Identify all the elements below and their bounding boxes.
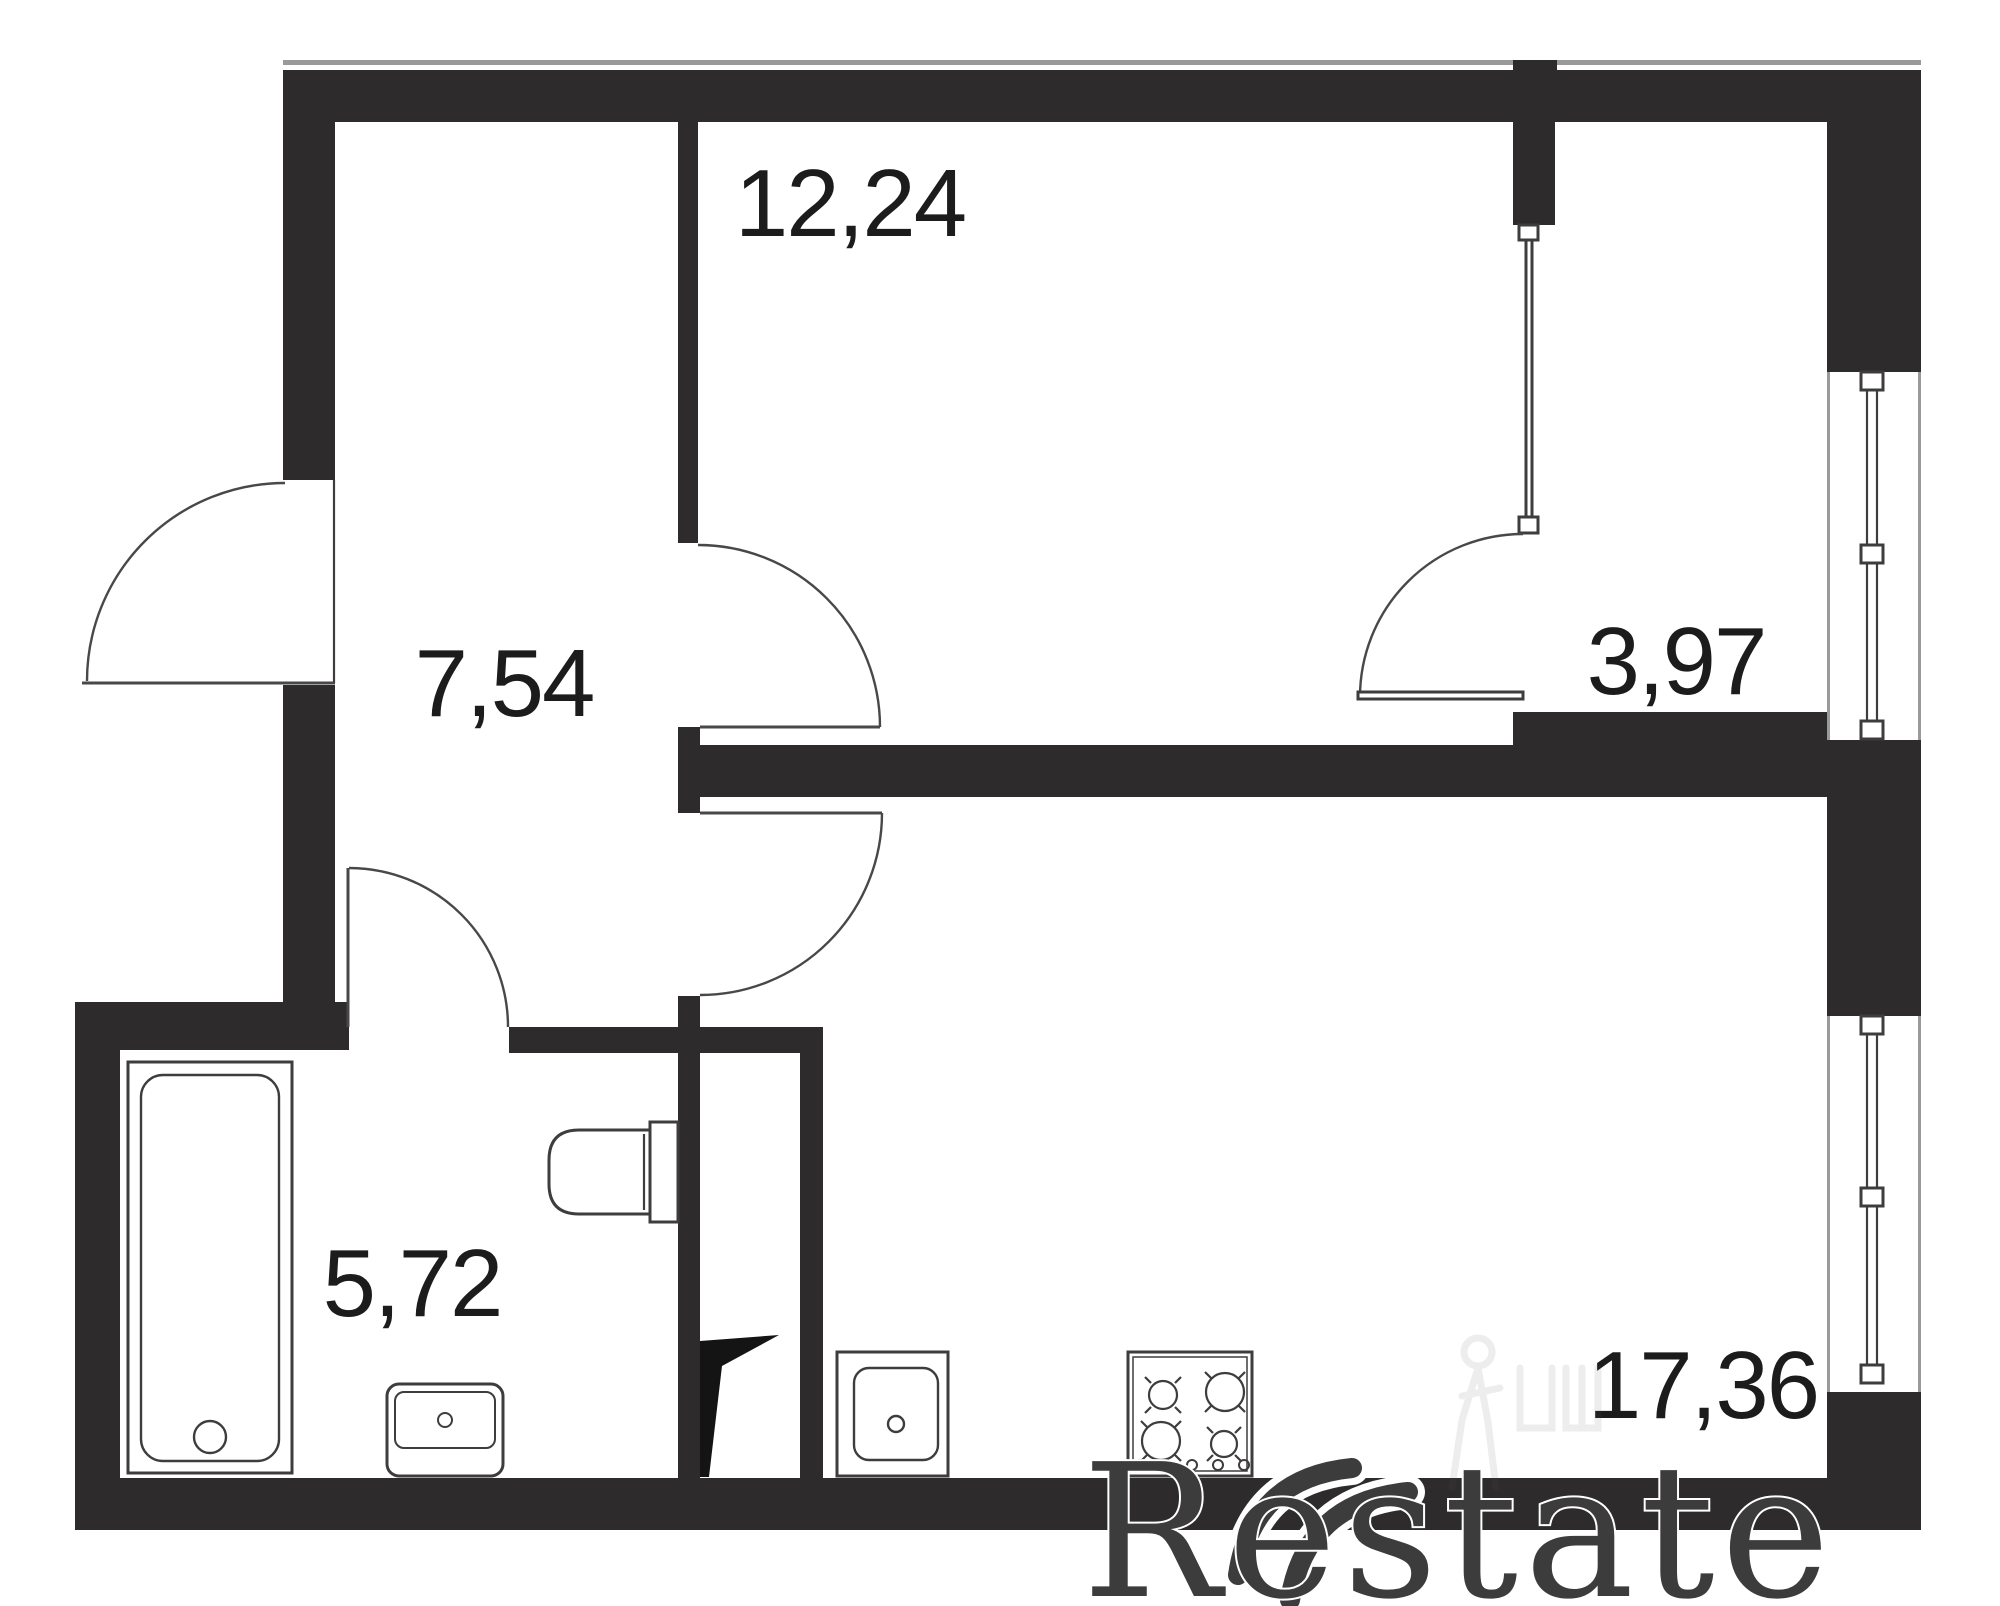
wall-right-upper xyxy=(1827,122,1921,372)
upper-right-window xyxy=(1827,372,1921,740)
door-swing-arc xyxy=(698,545,880,727)
wall-bathroom-left xyxy=(75,1050,120,1478)
watermark-brand-text: Restate xyxy=(1082,1424,1836,1606)
sink-drain-icon xyxy=(888,1416,904,1432)
balcony-door xyxy=(1358,534,1523,699)
door-leaf xyxy=(1358,692,1523,699)
floor-plan-canvas: 12,24 7,54 3,97 5,72 17,36 Restate xyxy=(0,0,2000,1606)
entrance-door xyxy=(82,480,335,683)
bedroom-door xyxy=(698,545,880,727)
window-mullion-icon xyxy=(1861,1016,1883,1034)
lower-right-window xyxy=(1827,1016,1921,1392)
wall-bathroom-right xyxy=(678,996,700,1478)
wall-shaft-right xyxy=(800,1053,823,1478)
sink-basin xyxy=(854,1368,938,1460)
bathroom-door xyxy=(348,868,508,1027)
bathtub-outer xyxy=(128,1062,292,1473)
wall-top xyxy=(283,70,1921,122)
top-hairline xyxy=(283,60,1921,65)
window-outer-line xyxy=(1918,1016,1921,1392)
wall-bathroom-top-right xyxy=(509,1027,823,1053)
partition-line xyxy=(1526,240,1532,517)
wall-top-notch xyxy=(1513,60,1557,80)
window-mullion-icon xyxy=(1861,721,1883,739)
toilet xyxy=(549,1122,678,1222)
label-bedroom-area: 12,24 xyxy=(735,150,965,257)
kitchen-sink xyxy=(837,1352,948,1476)
wall-left-lower xyxy=(283,685,335,1002)
vent-wedge-icon xyxy=(700,1335,779,1477)
burner-icon xyxy=(1205,1372,1245,1412)
sink-outer xyxy=(387,1384,503,1476)
sink-faucet-icon xyxy=(438,1413,452,1427)
label-hallway-area: 7,54 xyxy=(415,630,594,737)
toilet-tank xyxy=(650,1122,678,1222)
wall-right-lower xyxy=(1827,1392,1921,1530)
label-balcony-area: 3,97 xyxy=(1587,608,1766,715)
window-inner-line xyxy=(1827,372,1830,740)
wall-hall-bedroom xyxy=(678,122,698,543)
bathtub-drain-icon xyxy=(194,1421,226,1453)
toilet-bowl xyxy=(549,1130,650,1214)
window-mullion-icon xyxy=(1861,545,1883,563)
window-outer-line xyxy=(1918,372,1921,740)
wall-corridor-left xyxy=(678,745,1513,797)
bathroom-sink xyxy=(387,1384,503,1476)
door-swing-arc xyxy=(1360,534,1523,697)
wall-bathroom-top-left xyxy=(75,1002,349,1050)
window-mullion-icon xyxy=(1861,372,1883,390)
wall-right-middle xyxy=(1827,740,1921,1016)
vent-shaft xyxy=(700,1335,779,1477)
partition-cap-top-icon xyxy=(1519,225,1538,240)
window-mullion-icon xyxy=(1861,1365,1883,1383)
door-swing-arc xyxy=(87,483,285,681)
kitchen-door xyxy=(700,813,882,995)
window-inner-line xyxy=(1827,1016,1830,1392)
wall-balcony-stub xyxy=(1513,122,1555,225)
partition-cap-bottom-icon xyxy=(1519,517,1538,533)
sink-basin xyxy=(395,1392,495,1448)
bathtub xyxy=(128,1062,292,1473)
wall-left-upper xyxy=(283,122,335,480)
label-living-area: 17,36 xyxy=(1588,1332,1818,1439)
glazed-partition xyxy=(1519,225,1538,533)
bathtub-inner xyxy=(141,1075,279,1461)
restate-watermark: Restate xyxy=(1082,1424,1836,1606)
door-swing-arc xyxy=(349,868,508,1027)
door-swing-arc xyxy=(700,813,882,995)
window-mullion-icon xyxy=(1861,1188,1883,1206)
wall-corridor-right xyxy=(1513,712,1827,797)
label-bathroom-area: 5,72 xyxy=(323,1230,502,1337)
floor-plan: 12,24 7,54 3,97 5,72 17,36 Restate xyxy=(0,0,2000,1606)
burner-icon xyxy=(1145,1377,1181,1413)
